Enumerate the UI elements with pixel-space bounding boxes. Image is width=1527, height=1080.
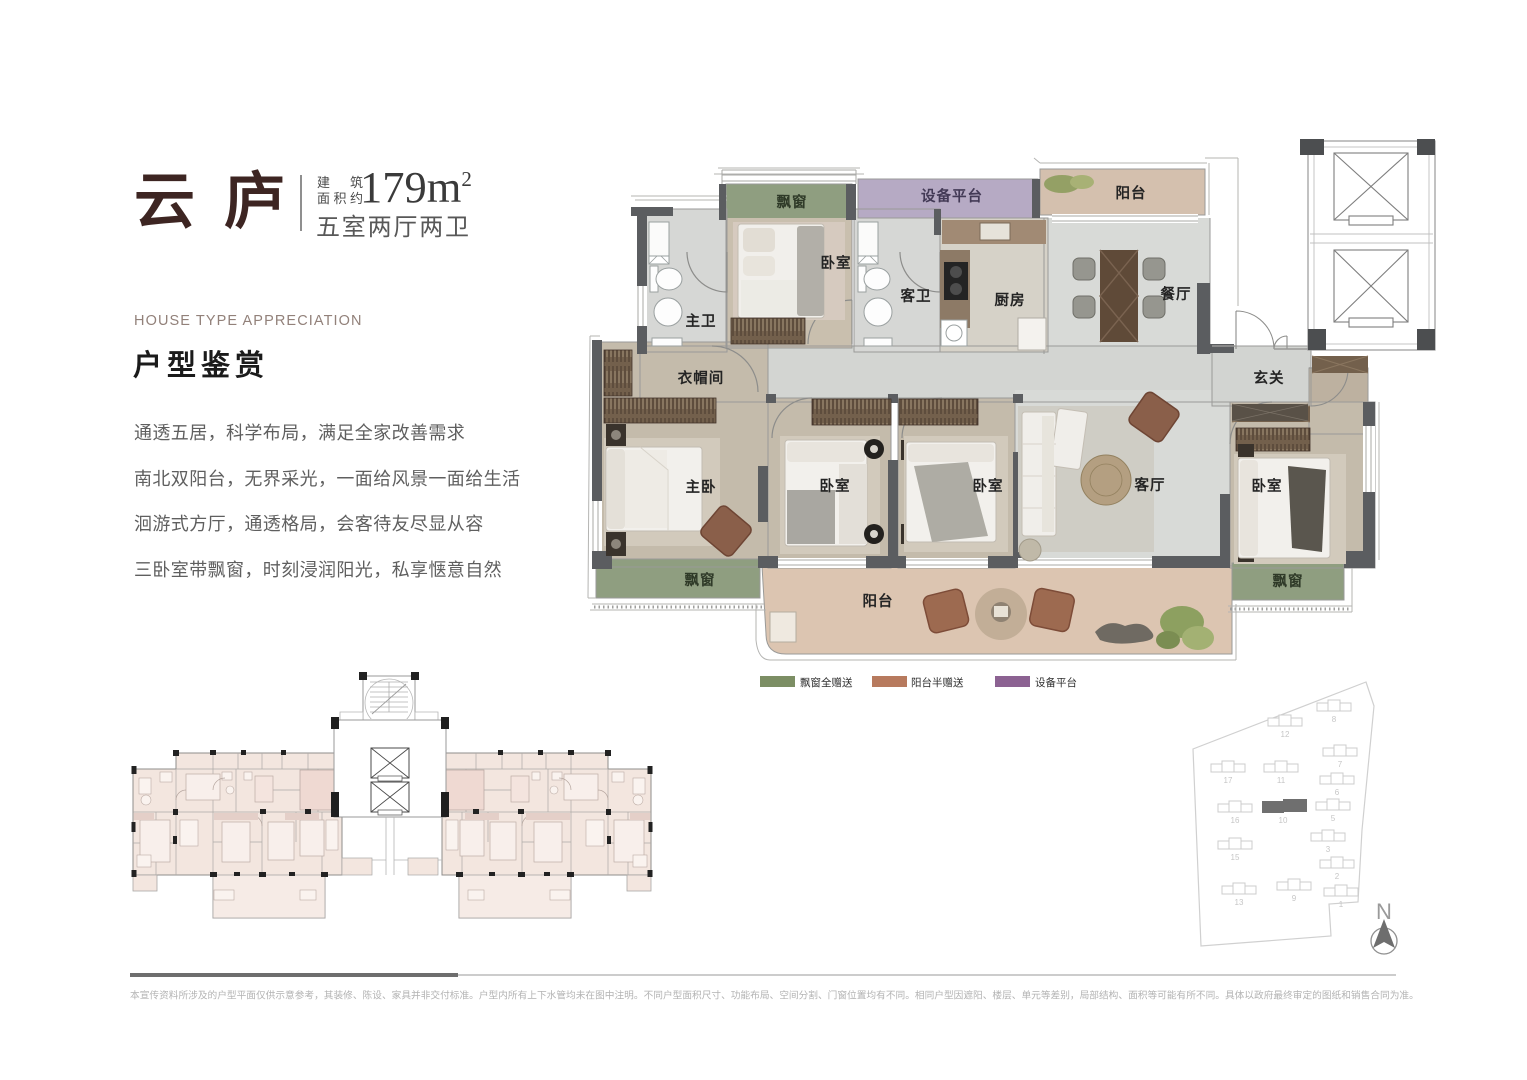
- svg-text:设备平台: 设备平台: [1035, 676, 1077, 689]
- svg-text:7: 7: [1338, 760, 1343, 769]
- svg-text:8: 8: [1332, 715, 1337, 724]
- svg-text:阳台半赠送: 阳台半赠送: [911, 676, 964, 689]
- svg-text:设备平台: 设备平台: [921, 187, 983, 205]
- svg-text:阳台: 阳台: [863, 592, 894, 610]
- svg-text:飘窗全赠送: 飘窗全赠送: [800, 676, 853, 689]
- svg-text:飘窗: 飘窗: [777, 193, 808, 211]
- svg-text:玄关: 玄关: [1254, 369, 1285, 387]
- svg-text:17: 17: [1224, 776, 1233, 785]
- svg-text:13: 13: [1235, 898, 1244, 907]
- svg-text:飘窗: 飘窗: [685, 571, 716, 589]
- svg-text:餐厅: 餐厅: [1161, 285, 1192, 303]
- svg-text:3: 3: [1326, 845, 1331, 854]
- svg-text:10: 10: [1279, 816, 1288, 825]
- svg-text:15: 15: [1231, 853, 1240, 862]
- svg-text:9: 9: [1292, 894, 1297, 903]
- svg-text:主卫: 主卫: [686, 312, 717, 330]
- svg-text:16: 16: [1231, 816, 1240, 825]
- svg-text:6: 6: [1335, 788, 1340, 797]
- svg-text:2: 2: [1335, 872, 1340, 881]
- svg-text:主卧: 主卧: [686, 478, 717, 496]
- svg-text:5: 5: [1331, 814, 1336, 823]
- svg-text:11: 11: [1277, 776, 1286, 785]
- svg-text:卧室: 卧室: [821, 254, 852, 272]
- svg-text:飘窗: 飘窗: [1273, 572, 1304, 590]
- svg-text:客厅: 客厅: [1134, 476, 1166, 494]
- svg-text:1: 1: [1339, 900, 1344, 909]
- svg-text:卧室: 卧室: [820, 477, 851, 495]
- svg-text:客卫: 客卫: [900, 287, 932, 305]
- svg-text:卧室: 卧室: [973, 477, 1004, 495]
- svg-text:厨房: 厨房: [995, 291, 1026, 309]
- svg-text:衣帽间: 衣帽间: [678, 369, 725, 387]
- svg-text:12: 12: [1281, 730, 1290, 739]
- svg-text:卧室: 卧室: [1252, 477, 1283, 495]
- svg-text:阳台: 阳台: [1116, 184, 1147, 202]
